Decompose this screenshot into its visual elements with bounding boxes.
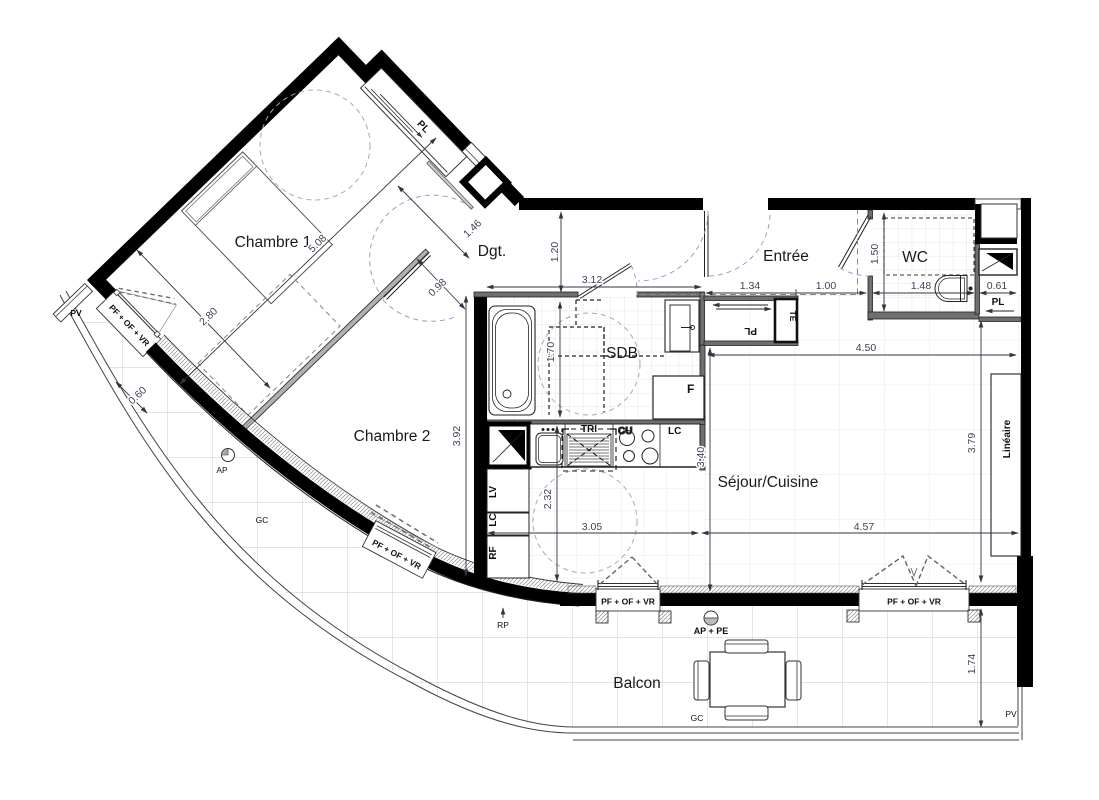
svg-text:LC: LC [488, 513, 499, 526]
svg-text:Linéaire: Linéaire [1002, 419, 1013, 458]
svg-text:F: F [687, 382, 694, 396]
svg-text:PV: PV [1005, 709, 1017, 719]
svg-text:1.00: 1.00 [816, 280, 837, 292]
svg-text:3.40: 3.40 [695, 447, 707, 468]
svg-text:PF + OF + VR: PF + OF + VR [601, 597, 655, 607]
svg-text:3.79: 3.79 [966, 433, 978, 454]
svg-text:CU: CU [618, 426, 632, 437]
svg-text:Chambre 1: Chambre 1 [235, 234, 312, 251]
svg-text:GC: GC [256, 515, 269, 525]
svg-text:PL: PL [992, 297, 1005, 308]
svg-text:1.50: 1.50 [869, 244, 881, 265]
svg-text:TRI: TRI [581, 424, 597, 435]
svg-text:AP: AP [216, 465, 228, 475]
svg-text:3.92: 3.92 [451, 426, 463, 447]
svg-text:AP + PE: AP + PE [694, 626, 729, 636]
svg-text:Dgt.: Dgt. [478, 243, 506, 260]
svg-text:Séjour/Cuisine: Séjour/Cuisine [718, 474, 819, 491]
svg-text:WC: WC [902, 249, 928, 266]
svg-text:3.12: 3.12 [582, 274, 603, 286]
svg-text:1.74: 1.74 [966, 654, 978, 675]
svg-text:LV: LV [488, 486, 499, 498]
svg-text:GC: GC [691, 713, 704, 723]
svg-text:RF: RF [488, 546, 499, 559]
svg-text:PL: PL [744, 325, 757, 336]
svg-text:RP: RP [497, 620, 509, 630]
svg-text:3.05: 3.05 [582, 521, 603, 533]
svg-text:4.57: 4.57 [854, 521, 875, 533]
svg-text:SDB: SDB [606, 345, 638, 362]
svg-text:Balcon: Balcon [613, 675, 660, 692]
svg-text:1.20: 1.20 [549, 242, 561, 263]
svg-text:4.50: 4.50 [856, 342, 877, 354]
svg-text:2.32: 2.32 [542, 489, 554, 510]
svg-text:0.61: 0.61 [987, 280, 1008, 292]
svg-text:PF + OF + VR: PF + OF + VR [887, 597, 941, 607]
svg-text:1.48: 1.48 [911, 280, 932, 292]
svg-text:Chambre 2: Chambre 2 [354, 428, 431, 445]
svg-text:TE: TE [788, 311, 798, 322]
svg-text:LC: LC [668, 426, 681, 437]
svg-text:PV: PV [70, 308, 82, 318]
svg-text:Entrée: Entrée [763, 248, 809, 265]
svg-text:1.70: 1.70 [545, 342, 557, 363]
svg-text:1.34: 1.34 [740, 280, 761, 292]
